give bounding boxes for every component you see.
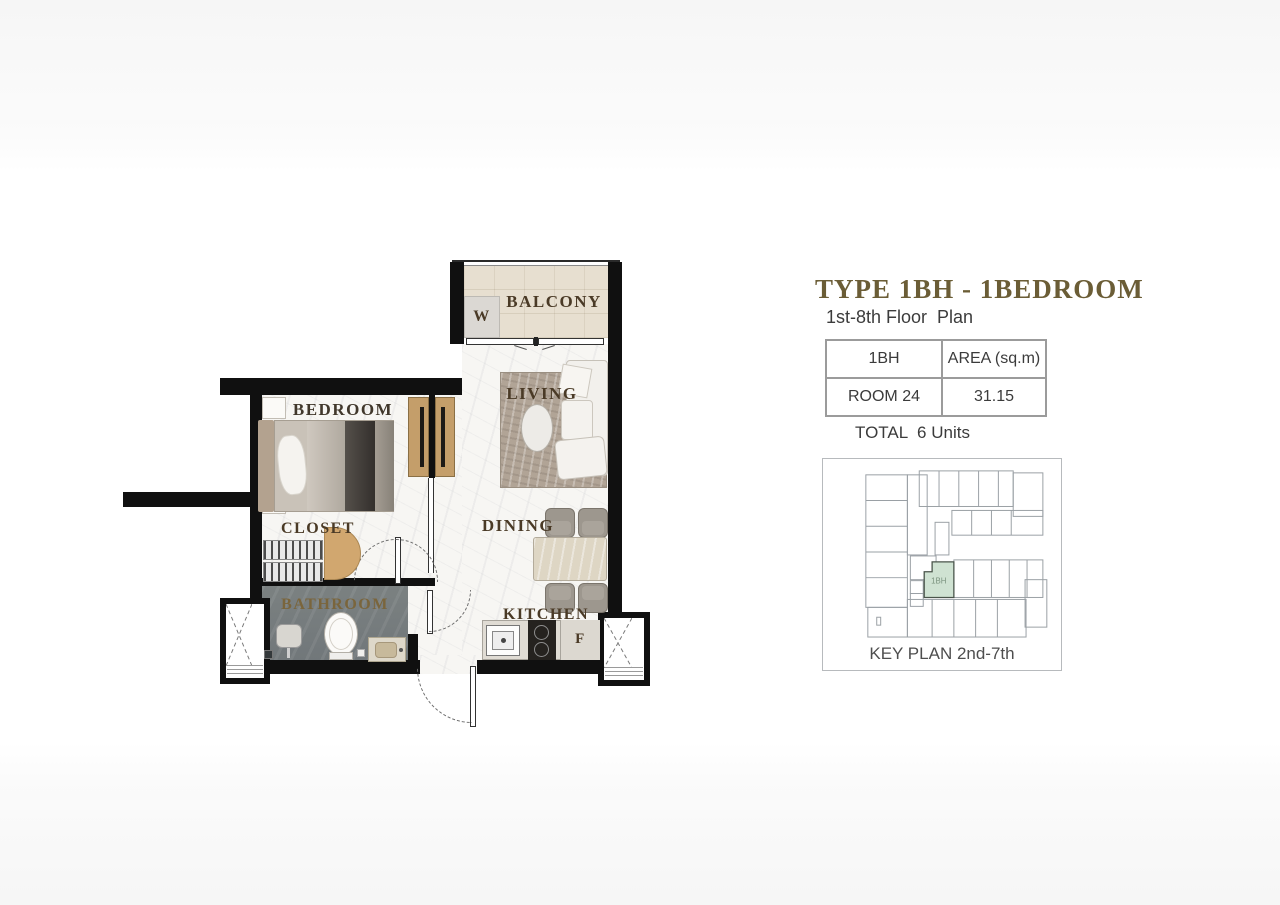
bathroom-vanity [368, 637, 406, 662]
wall [477, 660, 608, 674]
kitchen-stove [528, 620, 556, 660]
washer-box: W [464, 296, 500, 338]
sofa-chaise [554, 435, 608, 480]
slider-stop [534, 337, 538, 346]
coffee-table [521, 404, 553, 452]
fridge-box: F [560, 620, 600, 660]
bathroom-door-swing [429, 590, 473, 634]
wall [250, 660, 420, 674]
dining-table [533, 537, 607, 581]
blanket [345, 421, 375, 511]
room-label-kitchen: KITCHEN [500, 606, 592, 624]
bed [274, 420, 394, 512]
washer-label: W [465, 308, 499, 326]
shaft-x-icon [226, 604, 252, 666]
info-panel: TYPE 1BH - 1BEDROOM 1st-8th Floor Plan 1… [780, 260, 1100, 680]
room-label-bathroom: BATHROOM [268, 596, 402, 614]
closet-shelves [263, 540, 323, 560]
balcony-railing [452, 260, 620, 266]
total-units: TOTAL 6 Units [855, 423, 970, 443]
room-label-closet: CLOSET [268, 520, 368, 538]
floor-drain-icon [264, 650, 273, 659]
shower-stem [287, 648, 290, 658]
wall [608, 344, 622, 616]
table-cell-type: 1BH [826, 340, 942, 378]
wall [450, 262, 464, 344]
faucet-icon [501, 638, 506, 643]
service-shaft-right [598, 612, 650, 686]
balcony-sliding-door [466, 338, 534, 345]
blanket [307, 421, 345, 511]
wall [408, 634, 418, 660]
fridge-label: F [561, 631, 600, 648]
room-label-balcony: BALCONY [500, 292, 608, 312]
entry-door-swing [416, 668, 472, 725]
floor-plan-page: W [0, 0, 1280, 905]
floor-range-subtitle: 1st-8th Floor Plan [826, 307, 973, 328]
service-shaft-left [220, 598, 270, 684]
blanket [375, 421, 394, 511]
pillow [275, 434, 309, 497]
dining-chair [578, 508, 608, 538]
key-plan-unit-label: 1BH [931, 577, 947, 586]
wall [220, 378, 462, 395]
room-label-bedroom: BEDROOM [283, 400, 403, 420]
wardrobe [408, 397, 429, 477]
faucet-icon [399, 648, 403, 652]
sofa-cushion [561, 400, 593, 440]
bed-headboard [258, 420, 274, 512]
burner-icon [534, 625, 549, 640]
toilet [324, 612, 358, 656]
unit-info-table: 1BH AREA (sq.m) ROOM 24 31.15 [825, 339, 1047, 417]
key-plan-box: 1BH KEY PLAN 2nd-7th [822, 458, 1062, 671]
shaft-grill [227, 665, 263, 676]
flush-button [357, 649, 365, 657]
table-cell-area-value: 31.15 [942, 378, 1046, 416]
table-cell-room: ROOM 24 [826, 378, 942, 416]
closet-door-swing [353, 538, 441, 582]
shower-head [276, 624, 302, 648]
basin [375, 642, 397, 658]
kitchen-sink [486, 625, 520, 656]
toilet-tank [329, 652, 353, 660]
balcony-sliding-door [538, 338, 604, 345]
key-plan-drawing: 1BH [832, 461, 1052, 639]
shaft-grill [605, 667, 643, 678]
wall [608, 262, 622, 344]
wall [123, 492, 250, 507]
floor-plan: W [0, 0, 700, 905]
key-plan-caption: KEY PLAN 2nd-7th [823, 644, 1061, 664]
room-label-living: LIVING [497, 384, 587, 404]
burner-icon [534, 642, 549, 657]
room-label-dining: DINING [470, 516, 566, 536]
page-title: TYPE 1BH - 1BEDROOM [815, 274, 1175, 305]
wardrobe [435, 397, 455, 477]
table-cell-area-header: AREA (sq.m) [942, 340, 1046, 378]
closet-shelves [263, 562, 323, 582]
shaft-x-icon [604, 618, 632, 668]
